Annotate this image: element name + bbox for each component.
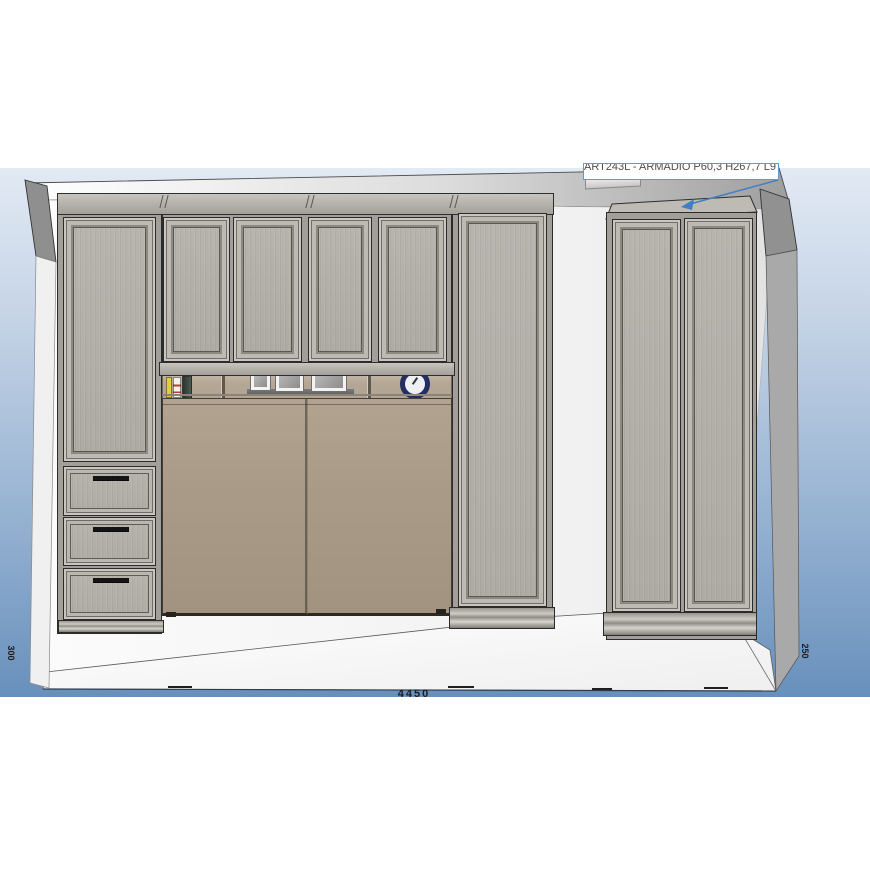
- left-column-door[interactable]: [63, 217, 156, 462]
- bridge-door-3[interactable]: [308, 217, 372, 362]
- niche-shelf-edge: [162, 394, 452, 396]
- bottom-white-band: [0, 697, 870, 870]
- right-wall-face: [766, 250, 799, 691]
- floor-edge-mark: [592, 688, 612, 690]
- composition-cornice: [57, 193, 554, 215]
- wardrobe-door-left[interactable]: [612, 219, 681, 612]
- cornice-joint: [449, 195, 458, 208]
- drawer-1[interactable]: [63, 466, 156, 516]
- floor-edge-mark: [704, 687, 728, 689]
- right-wall-top-edge: [760, 189, 797, 256]
- right-column-plinth: [449, 607, 555, 629]
- right-column-door[interactable]: [458, 213, 547, 607]
- drawer-2-handle[interactable]: [93, 527, 129, 532]
- bridge-door-2[interactable]: [233, 217, 302, 362]
- wardrobe-door-right[interactable]: [684, 218, 753, 612]
- cornice-joint: [305, 195, 314, 208]
- drawer-1-handle[interactable]: [93, 476, 129, 481]
- niche-divider-left: [221, 376, 225, 400]
- viewport-3d: ART243L - ARMADIO P60,3 H267,7 L97 300 2…: [0, 0, 870, 870]
- wardrobe-plinth: [603, 612, 757, 636]
- drawer-3[interactable]: [63, 568, 156, 620]
- floor-edge-mark: [168, 686, 192, 688]
- drawer-2[interactable]: [63, 517, 156, 566]
- cornice-joint: [159, 195, 168, 208]
- bed-foot-left: [166, 612, 176, 617]
- dimension-left-wall: 300: [6, 638, 16, 668]
- bridge-door-4[interactable]: [378, 217, 447, 362]
- drawer-3-handle[interactable]: [93, 578, 129, 583]
- annotation-label-text: ART243L - ARMADIO P60,3 H267,7 L97: [584, 163, 778, 173]
- floor-edge-mark: [448, 686, 474, 688]
- left-column-plinth: [58, 620, 164, 633]
- dimension-right-wall: 250: [800, 636, 810, 666]
- niche-divider-right: [367, 376, 371, 400]
- bridge-door-1[interactable]: [163, 217, 230, 362]
- bridge-bottom-rail: [159, 362, 455, 376]
- bed-panel-seam-horizontal: [163, 404, 451, 405]
- bed-foot-right: [436, 609, 446, 614]
- bed-panel-seam-vertical: [305, 399, 308, 614]
- annotation-label[interactable]: ART243L - ARMADIO P60,3 H267,7 L97: [583, 163, 779, 180]
